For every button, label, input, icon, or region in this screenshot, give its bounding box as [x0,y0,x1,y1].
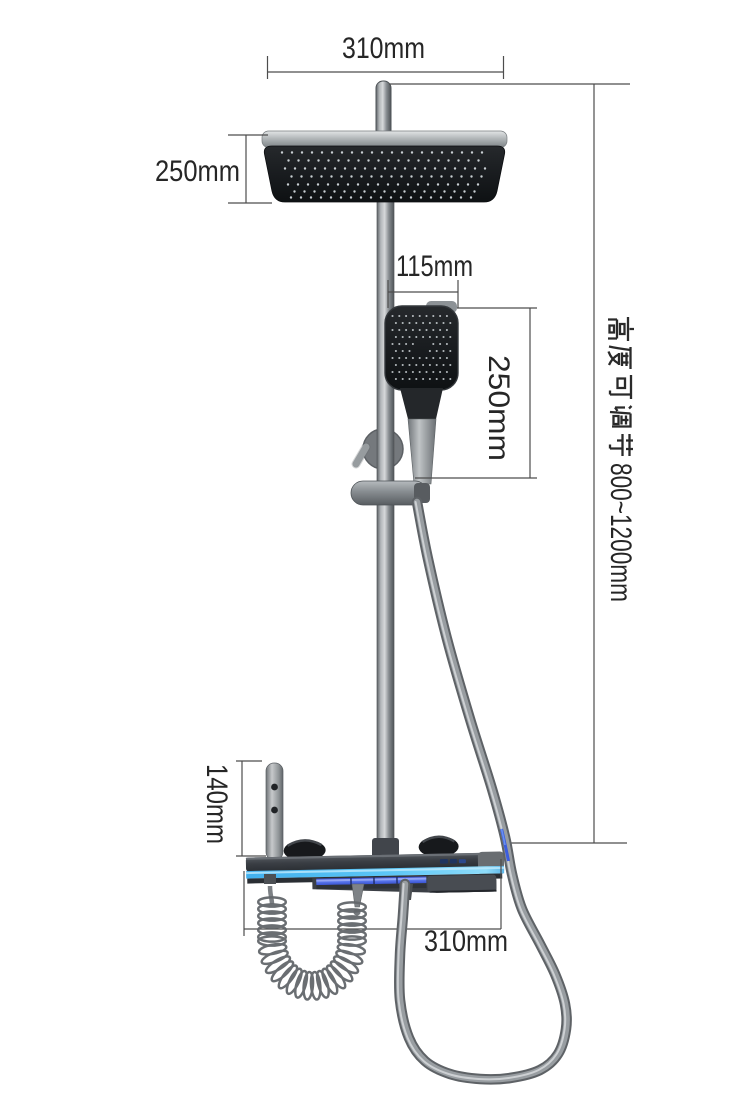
svg-text:800~1200mm: 800~1200mm [604,463,637,602]
svg-text:115mm: 115mm [396,250,473,283]
svg-text:250mm: 250mm [482,355,515,461]
svg-text:250mm: 250mm [155,155,240,188]
svg-text:310mm: 310mm [342,32,425,65]
svg-text:310mm: 310mm [424,925,508,958]
svg-text:140mm: 140mm [200,764,233,844]
